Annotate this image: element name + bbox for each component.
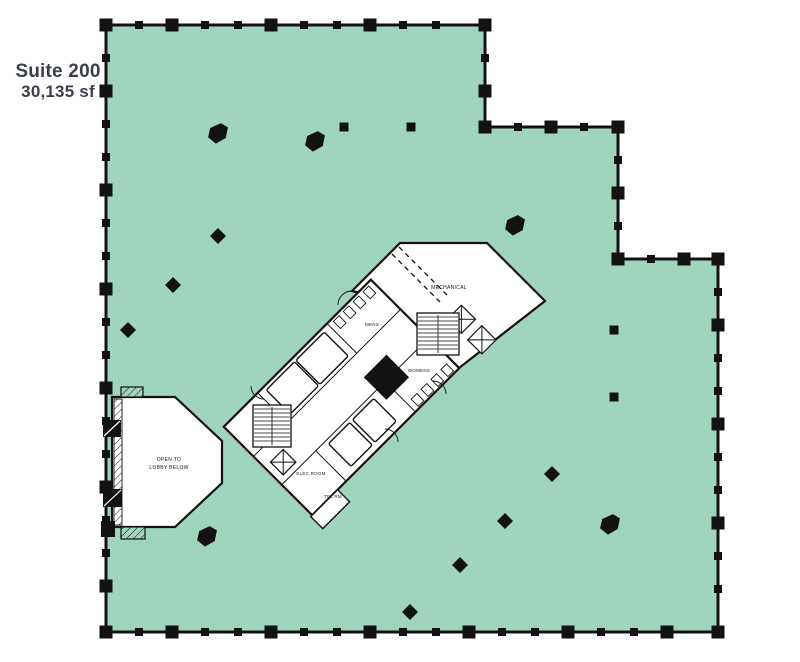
wall-tick [714, 486, 722, 494]
wall-tick [100, 283, 113, 296]
wall-tick [102, 54, 110, 62]
wall-tick [333, 21, 341, 29]
label-womens: WOMENS [408, 368, 430, 373]
wall-tick [714, 585, 722, 593]
wall-tick [102, 318, 110, 326]
wall-tick [614, 156, 622, 164]
wall-tick [234, 628, 242, 636]
wall-tick [364, 19, 377, 32]
wall-tick [531, 628, 539, 636]
wall-tick [100, 382, 113, 395]
wall-tick [265, 19, 278, 32]
vent-box-bottom-hatch [121, 527, 145, 539]
wall-tick [463, 626, 476, 639]
wall-tick [714, 288, 722, 296]
wall-tick [661, 626, 674, 639]
wall-tick [166, 19, 179, 32]
wall-tick [647, 255, 655, 263]
label-tel-rm: TEL RM [324, 494, 342, 499]
label-mens: MENS [365, 322, 379, 327]
corner-cap [612, 121, 625, 134]
wall-tick [630, 628, 638, 636]
wall-tick [102, 252, 110, 260]
column-square [340, 123, 349, 132]
wall-tick [102, 120, 110, 128]
wall-tick [612, 187, 625, 200]
corner-cap [612, 253, 625, 266]
column-square [407, 123, 416, 132]
corner-cap [479, 19, 492, 32]
wall-tick [714, 453, 722, 461]
wall-tick [432, 21, 440, 29]
corner-cap [100, 626, 113, 639]
wall-tick [714, 387, 722, 395]
wall-tick [498, 628, 506, 636]
wall-tick [432, 628, 440, 636]
label-mechanical: MECHANICAL [431, 285, 467, 291]
floor-plan-page: Suite 200 30,135 sf [0, 0, 800, 662]
wall-tick [714, 552, 722, 560]
corner-cap [100, 19, 113, 32]
floor-plan-svg: MECHANICAL MENS WOMENS ELEC ROOM TEL RM … [0, 0, 800, 662]
wall-tick [481, 54, 489, 62]
wall-tick [562, 626, 575, 639]
wall-tick [100, 184, 113, 197]
wall-tick [135, 628, 143, 636]
wall-tick [333, 628, 341, 636]
wall-tick [234, 21, 242, 29]
wall-tick [100, 580, 113, 593]
corner-cap [712, 253, 725, 266]
wall-tick [678, 253, 691, 266]
wall-tick [135, 21, 143, 29]
wall-tick [580, 123, 588, 131]
column-square [610, 393, 619, 402]
wall-end-cap [101, 521, 115, 537]
wall-tick [166, 626, 179, 639]
wall-tick [300, 21, 308, 29]
wall-tick [102, 450, 110, 458]
wall-tick [714, 354, 722, 362]
label-open-to: OPEN TO [157, 457, 181, 463]
wall-tick [102, 219, 110, 227]
wall-tick [712, 418, 725, 431]
wall-tick [712, 319, 725, 332]
label-elec-room: ELEC ROOM [296, 471, 325, 476]
corner-cap [479, 121, 492, 134]
wall-tick [364, 626, 377, 639]
wall-tick [100, 85, 113, 98]
wall-tick [399, 628, 407, 636]
wall-tick [201, 628, 209, 636]
label-lobby-below: LOBBY BELOW [149, 465, 188, 471]
wall-tick [479, 85, 492, 98]
wall-tick [514, 123, 522, 131]
wall-tick [300, 628, 308, 636]
wall-tick [712, 517, 725, 530]
wall-tick [597, 628, 605, 636]
wall-tick [102, 549, 110, 557]
wall-tick [545, 121, 558, 134]
wall-tick [102, 351, 110, 359]
wall-tick [399, 21, 407, 29]
corner-cap [712, 626, 725, 639]
wall-tick [102, 153, 110, 161]
wall-tick [265, 626, 278, 639]
wall-tick [614, 222, 622, 230]
wall-tick [201, 21, 209, 29]
column-square [610, 326, 619, 335]
vent-box-top-hatch [121, 387, 143, 397]
